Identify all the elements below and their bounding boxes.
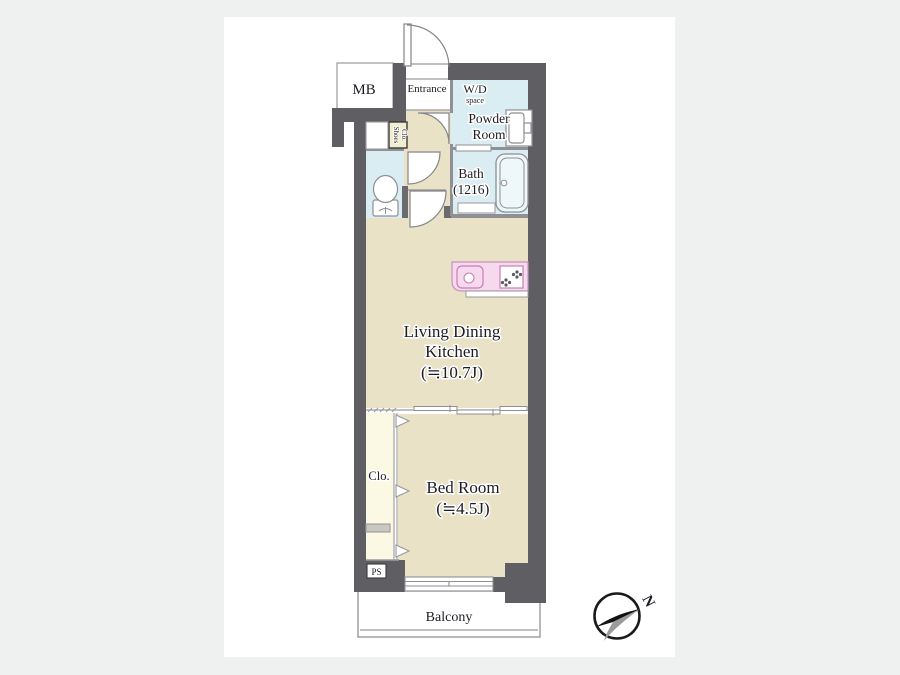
wc-wall-stub: [402, 186, 408, 218]
shoes-closet-label-line2: Clo.: [400, 129, 408, 141]
bath-step: [458, 203, 495, 213]
compass: N: [595, 593, 658, 641]
ldk-label-line3: (≒10.7J): [421, 363, 483, 382]
bathtub-icon: [496, 154, 528, 212]
entrance-label: Entrance: [407, 83, 446, 95]
closet-label: Clo.: [368, 469, 389, 483]
bath-label-line2: (1216): [453, 182, 489, 197]
closet-floor: [366, 413, 394, 561]
ps-label: PS: [371, 567, 381, 577]
entrance-door: [404, 24, 449, 80]
balcony-label: Balcony: [426, 610, 473, 625]
closet-shelf: [366, 524, 390, 532]
bedroom-label-line2: (≒4.5J): [436, 499, 489, 518]
wc-cabinet: [366, 122, 388, 149]
ldk-label-line1: Living Dining: [404, 322, 501, 341]
entrance-door-leaf: [404, 24, 411, 66]
ldk-label-line2: Kitchen: [425, 342, 479, 361]
bedroom-label-line1: Bed Room: [426, 478, 499, 497]
vanity-sink-icon: [506, 110, 532, 146]
bath-label-line1: Bath: [458, 166, 484, 181]
toilet-icon: [373, 176, 398, 217]
mb-label: MB: [352, 82, 375, 98]
entrance-door-arc: [407, 25, 449, 67]
wd-label-line1: W/D: [463, 82, 487, 96]
floorplan-drawing: N MB Entrance W/D space Powder Room Bath…: [0, 0, 900, 675]
powder-room-label-line2: Room: [472, 127, 506, 142]
wd-label-line2: space: [466, 96, 484, 105]
powder-room-label-line1: Powder: [468, 111, 510, 126]
floorplan-page: N MB Entrance W/D space Powder Room Bath…: [0, 0, 900, 675]
balcony-window: [405, 577, 493, 591]
compass-north-label: N: [639, 593, 658, 610]
shoes-closet-label-line1: Shoes: [392, 127, 400, 144]
stove-icon: [500, 266, 523, 288]
bath-door: [456, 145, 491, 151]
bath-wall-stub: [444, 206, 451, 218]
